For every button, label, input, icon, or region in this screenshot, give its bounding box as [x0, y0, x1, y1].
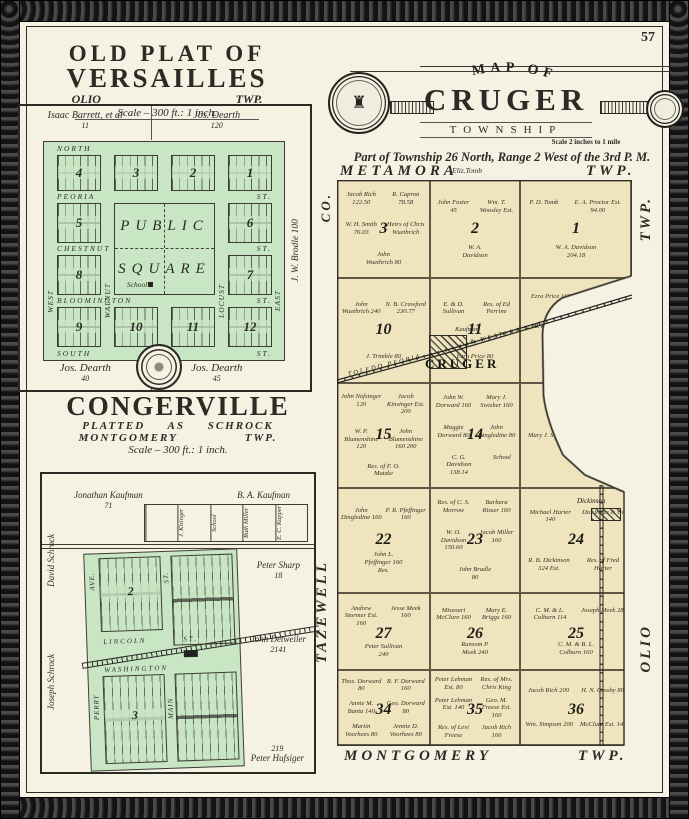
owner-joseph-schrock: Joseph Schrock — [46, 654, 57, 710]
street-west: WEST — [47, 290, 55, 313]
parcel-owner-label: P. R. Pfeffinger 160 — [385, 507, 426, 522]
parcel-owner-label: Missouri McClure 160 — [434, 607, 474, 622]
parcel-owner-label: C. G. Davidson — [583, 432, 624, 440]
south-township-montgomery: MONTGOMERY — [344, 748, 492, 765]
owner-ba-kaufman: B. A. Kaufman — [237, 490, 290, 501]
ornate-border-top — [0, 0, 689, 22]
block-number: 8 — [58, 268, 100, 281]
map-section-12: 12Ezra Price 160E. S. CombeW. P. Simpson… — [520, 278, 632, 383]
owner-jonathan-kaufman: Jonathan Kaufman71 — [74, 490, 143, 510]
street-peoria: PEORIA — [57, 193, 114, 201]
section-number: 24 — [521, 532, 631, 548]
parcel-owner-label: R. F. Dorward 74.67 — [551, 353, 601, 368]
parcel-owner-label: W. O. Davidson 150.60 — [434, 529, 474, 552]
kaufman-label: Kaufman — [455, 326, 479, 333]
versailles-frame: Isaac Barrett, et al11 Jos. Dearth120 NO… — [18, 104, 312, 392]
parcel-owner-label: John W. Dorward 160 — [434, 394, 474, 409]
parcel-owner-label: Mary E. Briggs 160 — [477, 607, 517, 622]
parcel-owner-label: Jacob Kinsinger Est. 200 — [385, 393, 426, 416]
map-section-36: 36Jacob Rich 200H. N. Crosby 80Wm. Simps… — [520, 670, 632, 746]
notary-seal — [136, 344, 182, 390]
street-east: EAST — [274, 290, 282, 311]
parcel-owner-label: R. F. Dorward 160 — [385, 678, 426, 693]
parcel-owner-label: Jennie D. Voorhees 80 — [385, 723, 426, 738]
parcel-owner-label: Res. of Mrs. Chris King — [477, 676, 517, 691]
west-county-co: CO. — [318, 192, 334, 222]
parcel-owner-label: John Dingledine 160 — [341, 507, 382, 522]
owner-john-detweiler: John Detweiler2141 — [251, 634, 306, 654]
parcel-box — [145, 505, 177, 541]
parcel-owner-label: R. B. Dickinson 324 Est. — [524, 557, 574, 572]
parcel-box: E. C. Kupper — [275, 505, 307, 541]
public-square-word1: PUBLIC — [115, 218, 214, 235]
street-main: MAIN — [166, 698, 175, 719]
atlas-page: 57 OLD PLAT OF VERSAILLES OLIO TWP. Scal… — [0, 0, 689, 819]
map-section-26: 26Missouri McClure 160Mary E. Briggs 160… — [430, 593, 520, 670]
map-section-1: 1P. D. TombE. A. Proctor Est. 94.00W. A.… — [520, 180, 632, 278]
parcel-owner-label: Geo. M. Freese Est. 160 — [477, 697, 517, 720]
congerville-twp-name: MONTGOMERY — [79, 432, 178, 444]
map-section-34: 34Thos. Dorward 80R. F. Dorward 160Annie… — [337, 670, 430, 746]
street-south: SOUTH — [57, 350, 101, 358]
parcel-owner-label: Michael Harter 140 — [525, 509, 575, 524]
town-block: 3 — [103, 674, 168, 764]
parcel-owner-label: John Foster 45 — [434, 199, 474, 214]
parcel-owner-label: C. M. & B. L. Colburn 160 — [551, 641, 601, 656]
left-medallion: ♜ — [328, 72, 390, 134]
street-perry: PERRY — [92, 694, 101, 720]
town-block: 7 — [228, 255, 272, 295]
block-number: 10 — [115, 320, 157, 333]
parcel-owner-label: Geo. Dorward 80 — [385, 700, 426, 715]
street-ave: AVE. — [88, 572, 97, 591]
town-block: 11 — [171, 307, 215, 347]
parcel-owner-label: H. N. Crosby 80 — [581, 687, 624, 695]
eliz-tomb-label: Eliz.Tomb — [452, 166, 482, 175]
ornate-border-bottom — [0, 797, 689, 819]
parcel-owner-label: N. B. Crawford 230.77 — [385, 301, 426, 316]
street-suffix: ST. — [162, 572, 170, 584]
block-number: 2 — [172, 166, 214, 179]
parcel-owner-label: Jacob Rich 200 — [528, 687, 569, 695]
parcel-owner-label: Res. of F. O. Matzke — [363, 463, 404, 478]
map-section-25: 25C. M. & L. Colburn 114Joseph Meek 284C… — [520, 593, 632, 670]
versailles-title-line2: VERSAILLES — [18, 65, 316, 92]
parcel-owner-label: Ransom P. Meek 240 — [455, 641, 495, 656]
street-chestnut: CHESTNUT — [57, 245, 114, 253]
parcel-owner-label: Peter Sullivan 240 — [363, 643, 404, 658]
block-number: 9 — [58, 320, 100, 333]
parcel-owner-label: John L. Pfeffinger 160 Res. — [363, 551, 404, 574]
section-number: 27 — [338, 626, 429, 642]
parcel-box: Ruth Miller — [242, 505, 274, 541]
owner-brodle: J. W. Brodle 100 — [284, 142, 308, 360]
owner-david-schrock: David Schrock — [46, 534, 57, 587]
town-block: 1 — [228, 155, 272, 191]
parcel-owner-label: W. P. Blumenshine 120 — [341, 428, 382, 451]
town-block: 2 — [171, 155, 215, 191]
parcel-owner-label: Maggie Dorward 80 — [434, 424, 474, 439]
congerville-title: CONGERVILLE — [40, 392, 316, 420]
map-sections-area: Kaufman CRUGER Dickinson TOLEDO PEORIA &… — [337, 180, 632, 746]
cruger-town-label: CRUGER — [425, 356, 499, 372]
block-number: 3 — [105, 708, 165, 722]
map-section-13: 13Mary J. SwisherC. G. Davidson — [520, 383, 632, 488]
parcel-owner-label: John Blumenshine 160 200 — [385, 428, 426, 451]
town-block: 12 — [228, 307, 272, 347]
congerville-parcel-row: J. KisingerSchoolRuth MillerE. C. Kupper — [144, 504, 308, 542]
owner-peter-hufsiger: 219Peter Hufsiger — [251, 744, 304, 764]
parcel-owner-label: Annie M. Banta 140 — [341, 700, 382, 715]
map-section-15: 15John Nofsinger 120Jacob Kinsinger Est.… — [337, 383, 430, 488]
owner-peter-sharp: Peter Sharp18 — [257, 560, 300, 580]
parcel-owner-label: Wm. T. Woosley Est. — [477, 199, 517, 214]
street-suffix: ST. — [257, 350, 272, 358]
map-section-35: 35Peter Lehman Est. 80Res. of Mrs. Chris… — [430, 670, 520, 746]
west-county-tazewell: TAZEWELL — [314, 560, 331, 663]
public-square-word2: SQUARE — [115, 261, 214, 278]
east-township-word: TWP. — [638, 196, 655, 241]
parcel-owner-label: Res. of Fred Harter — [578, 557, 628, 572]
versailles-plat-panel: OLD PLAT OF VERSAILLES OLIO TWP. Scale –… — [18, 42, 316, 392]
parcel-owner-label: Joseph Meek 284 — [581, 607, 627, 622]
township-word: TOWNSHIP — [420, 122, 592, 138]
parcel-owner-label: Thos. Dorward 80 — [341, 678, 382, 693]
public-square: PUBLIC SQUARE School — [114, 203, 215, 295]
street-locust: LOCUST — [218, 284, 226, 318]
parcel-owner-label: Andrew Stormer Est. 160 — [341, 605, 382, 628]
parcel-owner-label: Peter Lehman Est. 80 — [434, 676, 474, 691]
section-number: 26 — [431, 626, 519, 642]
town-block: 10 — [114, 307, 158, 347]
parcel-owner-label: R. Capron 78.58 — [385, 191, 426, 206]
congerville-plat-panel: CONGERVILLE PLATTED AS SCHROCK MONTGOMER… — [40, 392, 316, 776]
page-number: 57 — [641, 30, 655, 46]
cruger-township-map: Kaufman CRUGER Dickinson TOLEDO PEORIA &… — [337, 180, 632, 746]
parcel-owner-label: John Dingledine 80 — [477, 424, 517, 439]
parcel-owner-label: Jacob Miller 160 — [477, 529, 517, 552]
map-section-2: 2John Foster 45Wm. T. Woosley Est.W. A. … — [430, 180, 520, 278]
parcel-owner-label: Res. of C. S. Morrow — [434, 499, 474, 514]
owner-label: Isaac Barrett, et al11 — [20, 106, 152, 140]
versailles-owners-top: Isaac Barrett, et al11 Jos. Dearth120 — [20, 106, 282, 140]
parcel-owner-label: Res. of Ed Perrine — [477, 301, 517, 316]
section-road — [42, 544, 314, 549]
congerville-twp-word: TWP. — [245, 432, 278, 444]
parcel-owner-label: W. A. Davidson 204.18 — [551, 244, 601, 259]
section-number: 10 — [338, 322, 429, 338]
congerville-subtitle2: MONTGOMERY TWP. — [79, 432, 278, 444]
parcel-owner-label: C. G. Davidson 138.14 — [439, 454, 479, 477]
congerville-town-grid: 2 3 LINCOLN ST. WASHINGTON AVE. PERRY MA… — [84, 549, 243, 770]
right-medallion — [646, 90, 684, 128]
street-lincoln: LINCOLN — [103, 637, 146, 647]
north-township-metamora: METAMORA — [340, 163, 458, 180]
map-section-23: 23Res. of C. S. MorrowBarbara Risser 160… — [430, 488, 520, 593]
parcel-owner-label: Mary J. Swisher 160 — [477, 394, 517, 409]
block-number: 11 — [172, 320, 214, 333]
street-suffix: ST. — [257, 297, 272, 305]
parcel-owner-label: P. E. Lowe — [591, 323, 619, 331]
school-label: School — [127, 280, 153, 289]
owner-label: Jos. Dearth120 — [152, 106, 283, 140]
map-section-24: 24Michael Harter 140Dickinson & Co.R. B.… — [520, 488, 632, 593]
town-block: 9 — [57, 307, 101, 347]
cruger-scale: Scale 2 inches to 1 mile — [506, 138, 666, 146]
section-number: 25 — [521, 626, 631, 642]
town-block — [170, 554, 235, 646]
dickinson-town-label: Dickinson — [577, 497, 605, 505]
parcel-owner-label: John Wuethrich 80 — [363, 251, 404, 266]
parcel-owner-label: Mary J. Swisher — [528, 432, 571, 440]
town-block: 5 — [57, 203, 101, 243]
section-number: 1 — [521, 221, 631, 237]
block-number: 4 — [58, 166, 100, 179]
parcel-owner-label: Jacob Rich 160 — [477, 724, 517, 739]
congerville-scale: Scale – 300 ft.: 1 inch. — [40, 444, 316, 456]
map-section-14: 14John W. Dorward 160Mary J. Swisher 160… — [430, 383, 520, 488]
parcel-owner-label: E. S. Combe — [589, 293, 622, 301]
parcel-owner-label: E. & D. Sullivan — [434, 301, 474, 316]
street-suffix: ST. — [183, 635, 198, 644]
map-section-27: 27Andrew Stormer Est. 160Jesse Meek 160P… — [337, 593, 430, 670]
town-block: 3 — [114, 155, 158, 191]
parcel-owner-label: E. A. Proctor Est. 94.00 — [573, 199, 623, 214]
east-township-olio: OLIO — [638, 624, 655, 673]
north-township-word: TWP. — [586, 163, 635, 180]
parcel-owner-label: C. M. & L. Colburn 114 — [525, 607, 575, 622]
parcel-owner-label: Jacob Rich 122.50 — [341, 191, 382, 206]
parcel-owner-label: John Nofsinger 120 — [341, 393, 382, 416]
block-number: 6 — [229, 216, 271, 229]
block-number: 12 — [229, 320, 271, 333]
block-number: 5 — [58, 216, 100, 229]
cruger-title: CRUGER — [398, 84, 614, 115]
parcel-owner-label: John Bradle 80 — [455, 566, 495, 581]
parcel-owner-label: McClure Est. 140 — [580, 721, 626, 729]
parcel-owner-label: Peter Lehman Est. 140 — [434, 697, 474, 720]
parcel-box: School — [210, 505, 242, 541]
town-block: 4 — [57, 155, 101, 191]
town-block: 2 — [98, 556, 163, 632]
block-number: 7 — [229, 268, 271, 281]
town-block: 8 — [57, 255, 101, 295]
street-walnut: WALNUT — [104, 283, 112, 318]
block-number: 2 — [100, 584, 160, 598]
section-number: 2 — [431, 221, 519, 237]
versailles-town-grid: NORTH PEORIA ST. CHESTNUT ST. BLOOMINGTO… — [44, 142, 284, 360]
parcel-owner-label: W. H. Smith 76.03 — [341, 221, 382, 236]
depot-building — [184, 650, 198, 657]
street-north: NORTH — [57, 145, 158, 153]
dickinson-town-block — [591, 508, 621, 521]
congerville-subtitle1: PLATTED AS SCHROCK — [40, 420, 316, 432]
parcel-owner-label: W. A. Davidson — [455, 244, 495, 259]
congerville-frame: Jonathan Kaufman71 B. A. Kaufman J. Kisi… — [40, 472, 316, 774]
street-washington: WASHINGTON — [104, 664, 168, 674]
ornate-border-left — [0, 0, 20, 819]
map-section-22: 22John Dingledine 160P. R. Pfeffinger 16… — [337, 488, 430, 593]
parcel-owner-label: Barbara Risser 160 — [477, 499, 517, 514]
parcel-owner-label: Jesse Meek 160 — [385, 605, 426, 628]
parcel-owner-label: School — [493, 454, 511, 477]
town-block: 6 — [228, 203, 272, 243]
svg-text:MAP OF: MAP OF — [471, 60, 559, 83]
section-number: 22 — [338, 532, 429, 548]
map-section-3: 3Jacob Rich 122.50R. Capron 78.58W. H. S… — [337, 180, 430, 278]
parcel-owner-label: Wm. Simpson 200 — [526, 721, 573, 729]
block-number: 1 — [229, 166, 271, 179]
parcel-owner-label: Heirs of Chris Wuethrich — [385, 221, 426, 236]
parcel-owner-label: Ezra Price 160 — [531, 293, 571, 301]
versailles-title-line1: OLD PLAT OF — [18, 42, 316, 65]
street-suffix: ST. — [257, 245, 272, 253]
street-suffix: ST. — [257, 193, 272, 201]
parcel-box: J. Kisinger — [177, 505, 209, 541]
south-township-word: TWP. — [578, 748, 627, 765]
parcel-owner-label: Res. of Levi Freese — [434, 724, 474, 739]
parcel-owner-label: P. D. Tomb — [529, 199, 558, 214]
parcel-owner-label: John Wuethrich 240 — [341, 301, 382, 316]
section-number: 36 — [521, 702, 631, 718]
parcel-owner-label: Martin Voorhees 80 — [341, 723, 382, 738]
block-number: 3 — [115, 166, 157, 179]
town-block — [174, 671, 239, 761]
owner-label: Jos. Dearth40 — [20, 358, 152, 390]
